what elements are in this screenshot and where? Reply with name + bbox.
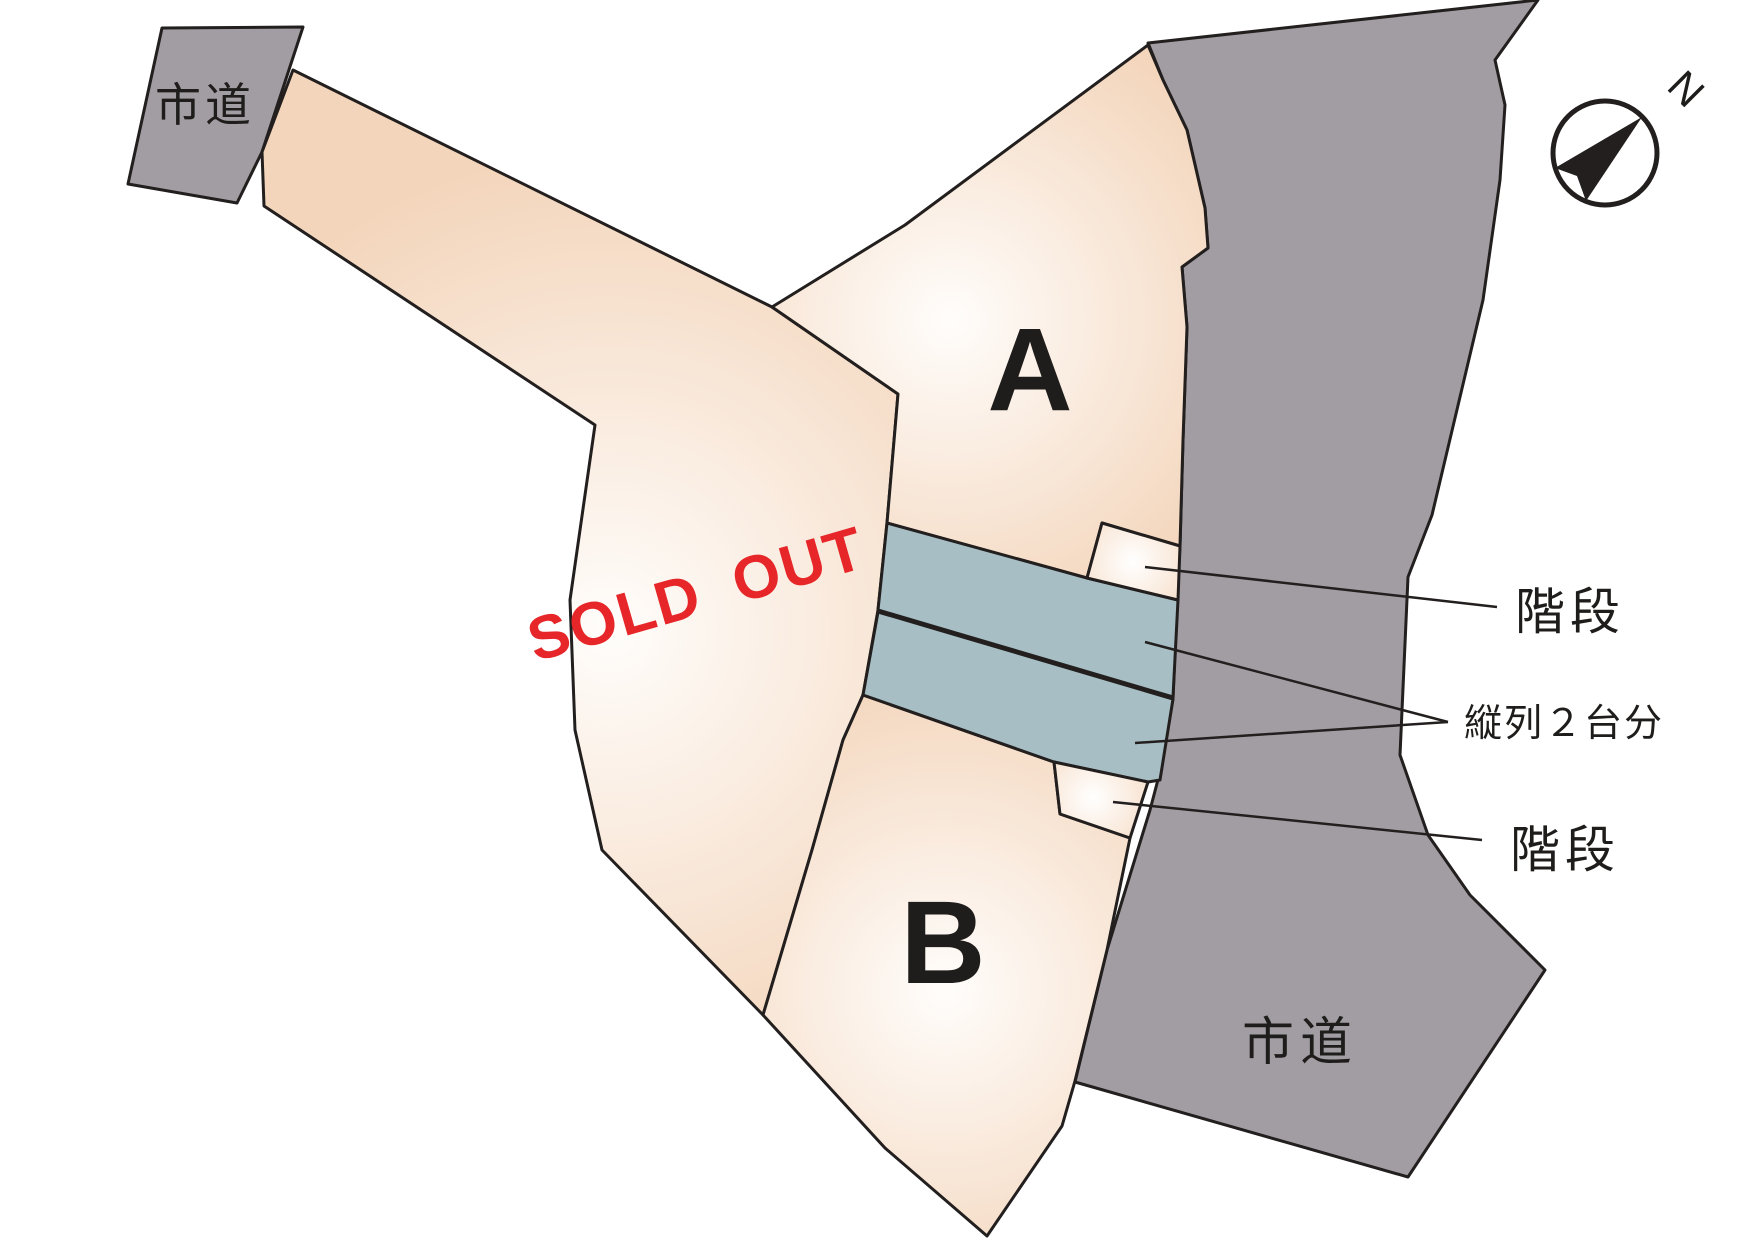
- stairs-top-label: 階段: [1515, 584, 1625, 640]
- compass: N: [1553, 61, 1714, 205]
- road-right-label: 市道: [1242, 1014, 1358, 1072]
- tandem-parking-label: 縦列２台分: [1464, 703, 1664, 745]
- lot-a-label: A: [987, 304, 1072, 436]
- site-plan-canvas: N 市道 市道 A B SOLD OUT 階段 縦列２台分 階段: [0, 0, 1754, 1241]
- compass-north-label: N: [1659, 61, 1714, 116]
- stairs-bottom-label: 階段: [1510, 822, 1620, 878]
- site-plan: N 市道 市道 A B SOLD OUT 階段 縦列２台分 階段: [0, 0, 1754, 1241]
- lot-b-label: B: [900, 877, 985, 1009]
- road-top-left-label: 市道: [155, 79, 255, 131]
